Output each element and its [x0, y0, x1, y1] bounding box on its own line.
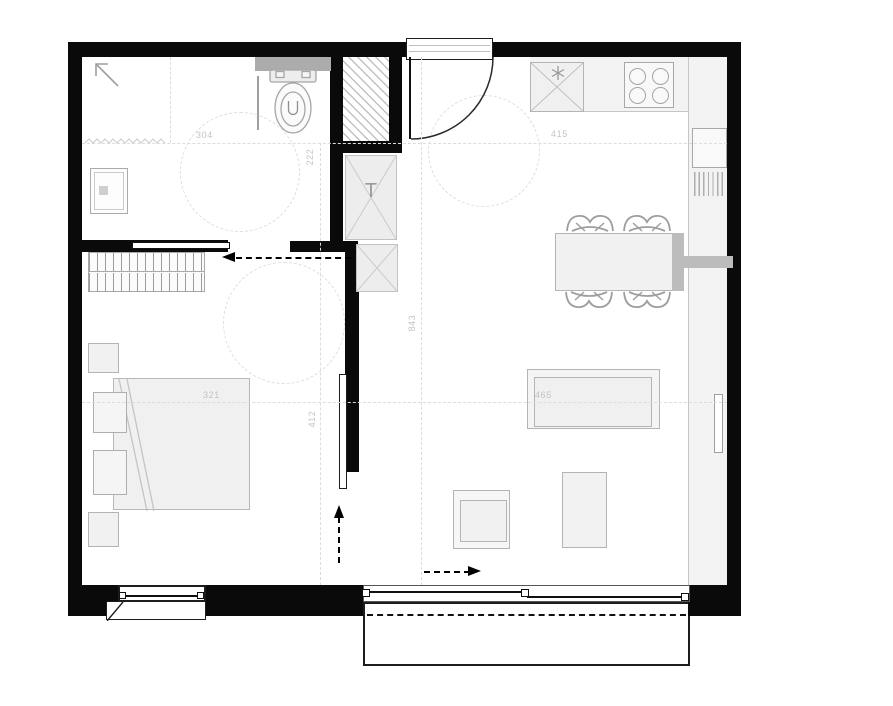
- dim-label-465: 465: [535, 390, 552, 400]
- hall-cabinet: [356, 244, 398, 292]
- table-counter-connector: [684, 256, 733, 268]
- bedroom-window: [118, 585, 206, 602]
- arrow-to-bedroom-head: [334, 505, 344, 518]
- nightstand: [88, 512, 119, 547]
- balcony: [363, 602, 690, 666]
- break-zigzag-line: [85, 138, 167, 145]
- shower-tray: [90, 168, 128, 214]
- window-frame-node: [197, 592, 204, 599]
- chair-icon: [562, 290, 616, 313]
- wall-right: [727, 42, 741, 616]
- shower-drain: [99, 186, 108, 195]
- wall-top-right: [492, 42, 741, 57]
- wall-left: [68, 42, 82, 616]
- coffee-table: [562, 472, 607, 548]
- technical-shaft-hatch: [343, 57, 389, 141]
- chair-icon: [563, 210, 617, 233]
- wardrobe: [88, 252, 205, 292]
- sink-cabinet: [692, 128, 727, 168]
- sliding-door-panel-1: [365, 591, 527, 593]
- corner-arrow-icon: [88, 56, 122, 90]
- chair-icon: [620, 210, 674, 233]
- bedroom-sliding-door: [339, 374, 347, 489]
- tech-cabinet: T: [345, 155, 397, 240]
- guide-line-horizontal-bottom: [82, 402, 727, 403]
- arrow-to-bedroom-tail: [338, 517, 340, 563]
- dim-label-843: 843: [407, 311, 417, 335]
- bedroom-window-sill: [106, 601, 206, 620]
- sliding-door-panel-2: [527, 596, 687, 598]
- chair-icon: [620, 290, 674, 313]
- arrow-to-bathroom-tail: [236, 257, 351, 259]
- pillow: [93, 450, 127, 495]
- clearance-circle-bedroom: [223, 262, 345, 384]
- window-frame-node: [119, 592, 126, 599]
- window-frame-node: [521, 589, 529, 597]
- dining-table-end-panel: [672, 233, 684, 291]
- armchair-seat: [460, 500, 507, 542]
- bedroom-window-glass: [124, 595, 200, 597]
- radiator-icon: [694, 172, 726, 196]
- window-frame-node: [362, 589, 370, 597]
- dim-label-412: 412: [307, 407, 317, 431]
- snowflake-icon: [550, 65, 566, 81]
- dining-table: [555, 233, 681, 291]
- fridge-freezer-icon: [530, 62, 584, 112]
- tech-cabinet-label: T: [346, 180, 396, 203]
- dim-label-321: 321: [203, 390, 220, 400]
- guide-line-vertical-left: [320, 143, 321, 585]
- arrow-to-bathroom-head: [222, 252, 235, 262]
- floor-plan: T: [0, 0, 893, 706]
- wall-shaft-east: [389, 42, 402, 153]
- wall-top-left: [68, 42, 408, 57]
- guide-line-horizontal-top: [82, 143, 727, 144]
- arrow-living-tail: [424, 571, 470, 573]
- dim-label-304: 304: [196, 130, 213, 140]
- wall-bottom-middle: [204, 585, 363, 616]
- window-frame-node: [681, 593, 689, 601]
- dim-label-415: 415: [551, 129, 568, 139]
- guide-line-vertical-bath: [170, 57, 171, 143]
- pocket-sliding-door: [132, 242, 230, 249]
- nightstand: [88, 343, 119, 373]
- pillow: [93, 392, 127, 433]
- entrance-door-swing-arc: [411, 57, 495, 141]
- balcony-edge-dashed-line: [367, 614, 686, 616]
- arrow-living-head: [468, 566, 481, 576]
- guide-line-vertical-right: [421, 57, 422, 585]
- cooktop-icon: [624, 62, 674, 108]
- wall-bottom-right: [688, 585, 741, 616]
- dim-label-222: 222: [305, 145, 315, 169]
- double-bed: [113, 378, 250, 510]
